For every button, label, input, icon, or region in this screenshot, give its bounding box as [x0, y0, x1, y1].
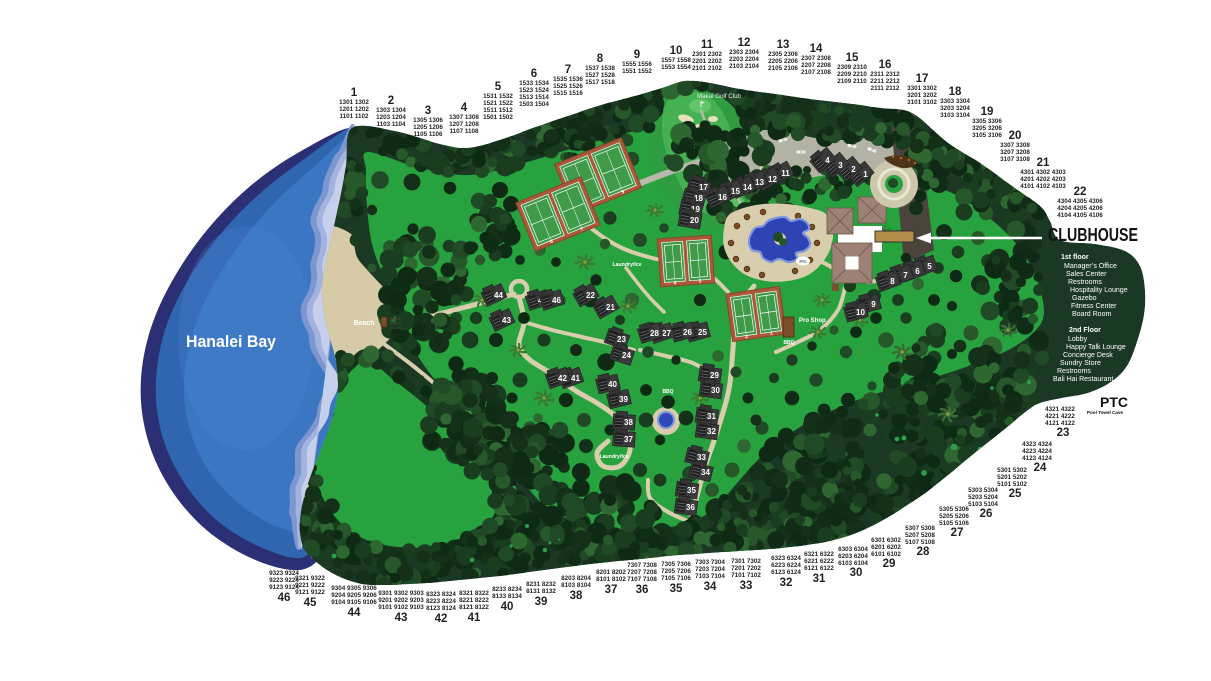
svg-text:14: 14: [743, 183, 752, 192]
svg-text:6301 6302: 6301 6302: [871, 537, 901, 544]
svg-text:29: 29: [710, 371, 719, 380]
svg-text:21: 21: [1037, 157, 1050, 169]
svg-text:6121 6122: 6121 6122: [804, 565, 834, 572]
svg-text:CLUBHOUSE: CLUBHOUSE: [1048, 225, 1138, 245]
svg-text:6321 6322: 6321 6322: [804, 551, 834, 558]
svg-text:19: 19: [981, 106, 994, 118]
svg-text:9323 9324: 9323 9324: [269, 570, 299, 577]
svg-text:1105 1106: 1105 1106: [413, 131, 443, 138]
svg-text:3101 3102: 3101 3102: [907, 99, 937, 106]
svg-text:3: 3: [838, 161, 843, 170]
svg-text:9204 9205 9206: 9204 9205 9206: [331, 592, 377, 599]
svg-text:1503 1504: 1503 1504: [519, 101, 549, 108]
svg-text:BBQ: BBQ: [783, 340, 794, 346]
svg-text:PTC: PTC: [1100, 394, 1128, 410]
svg-text:1307 1308: 1307 1308: [449, 114, 479, 121]
svg-text:3207 3208: 3207 3208: [1000, 149, 1030, 156]
svg-text:30: 30: [711, 386, 720, 395]
svg-text:27: 27: [951, 527, 964, 539]
svg-text:2: 2: [851, 165, 856, 174]
svg-text:8: 8: [890, 277, 895, 286]
svg-text:7: 7: [903, 271, 908, 280]
svg-text:4: 4: [461, 102, 468, 114]
svg-text:1521 1522: 1521 1522: [483, 100, 513, 107]
svg-text:8203 8204: 8203 8204: [561, 575, 591, 582]
svg-text:Concierge Desk: Concierge Desk: [1063, 352, 1113, 359]
svg-text:25: 25: [1009, 488, 1022, 500]
svg-text:43: 43: [395, 612, 408, 624]
svg-text:37: 37: [624, 435, 633, 444]
svg-text:9221 9222: 9221 9222: [295, 582, 325, 589]
svg-text:9123 9124: 9123 9124: [269, 584, 299, 591]
svg-text:4321 4322: 4321 4322: [1045, 406, 1075, 413]
svg-text:6201 6202: 6201 6202: [871, 544, 901, 551]
svg-text:12: 12: [738, 37, 751, 49]
svg-text:46: 46: [278, 592, 291, 604]
svg-text:6303 6304: 6303 6304: [838, 546, 868, 553]
svg-text:5: 5: [927, 262, 932, 271]
svg-text:Laundry/Ice: Laundry/Ice: [612, 262, 641, 268]
svg-text:24: 24: [1034, 462, 1047, 474]
svg-text:2305 2306: 2305 2306: [768, 51, 798, 58]
svg-text:Makai Golf Club: Makai Golf Club: [697, 93, 742, 100]
svg-text:34: 34: [701, 468, 710, 477]
svg-text:4221 4222: 4221 4222: [1045, 413, 1075, 420]
svg-text:Happy Talk Lounge: Happy Talk Lounge: [1066, 344, 1126, 351]
svg-text:22: 22: [586, 291, 595, 300]
svg-text:35: 35: [687, 486, 696, 495]
svg-text:1207 1208: 1207 1208: [449, 121, 479, 128]
svg-text:18: 18: [949, 86, 962, 98]
svg-text:1305 1306: 1305 1306: [413, 117, 443, 124]
svg-text:8: 8: [597, 53, 604, 65]
svg-text:1523 1524: 1523 1524: [519, 87, 549, 94]
svg-text:1517 1518: 1517 1518: [585, 79, 615, 86]
svg-text:1205 1206: 1205 1206: [413, 124, 443, 131]
svg-text:6: 6: [915, 267, 920, 276]
svg-text:Shack: Shack: [390, 325, 401, 330]
svg-text:8133 8134: 8133 8134: [492, 593, 522, 600]
svg-text:1513 1514: 1513 1514: [519, 94, 549, 101]
svg-text:7301 7302: 7301 7302: [731, 558, 761, 565]
svg-text:5201 5202: 5201 5202: [997, 474, 1027, 481]
svg-text:7205 7206: 7205 7206: [661, 568, 691, 575]
svg-text:46: 46: [552, 296, 561, 305]
svg-text:11: 11: [701, 39, 714, 51]
svg-text:43: 43: [502, 316, 511, 325]
svg-text:16: 16: [879, 59, 892, 71]
svg-text:BBQ: BBQ: [662, 389, 673, 395]
svg-text:3301 3302: 3301 3302: [907, 85, 937, 92]
svg-text:8321 8322: 8321 8322: [459, 590, 489, 597]
svg-text:1535 1536: 1535 1536: [553, 76, 583, 83]
svg-text:9321 9322: 9321 9322: [295, 575, 325, 582]
svg-text:3201 3202: 3201 3202: [907, 92, 937, 99]
svg-text:31: 31: [707, 412, 716, 421]
svg-text:9104 9105 9106: 9104 9105 9106: [331, 599, 377, 606]
svg-text:7103 7104: 7103 7104: [695, 573, 725, 580]
svg-text:Restrooms: Restrooms: [1068, 279, 1102, 286]
svg-text:4301 4302 4303: 4301 4302 4303: [1020, 169, 1066, 176]
svg-text:3: 3: [425, 105, 431, 117]
svg-text:1511 1512: 1511 1512: [483, 107, 513, 114]
svg-text:2311 2312: 2311 2312: [870, 71, 900, 78]
svg-text:4123 4124: 4123 4124: [1022, 455, 1052, 462]
svg-text:Hospitality Lounge: Hospitality Lounge: [1070, 287, 1128, 294]
svg-text:8101 8102: 8101 8102: [596, 576, 626, 583]
svg-text:1501 1502: 1501 1502: [483, 114, 513, 121]
svg-text:2205 2206: 2205 2206: [768, 58, 798, 65]
svg-text:8323 8324: 8323 8324: [426, 591, 456, 598]
svg-text:10: 10: [856, 308, 865, 317]
svg-text:38: 38: [624, 418, 633, 427]
svg-text:Restrooms: Restrooms: [1057, 368, 1091, 375]
svg-text:3105 3106: 3105 3106: [972, 132, 1002, 139]
svg-text:2105 2106: 2105 2106: [768, 65, 798, 72]
svg-text:36: 36: [686, 503, 695, 512]
svg-text:7307 7308: 7307 7308: [627, 562, 657, 569]
svg-text:5207 5208: 5207 5208: [905, 532, 935, 539]
svg-text:7107 7108: 7107 7108: [627, 576, 657, 583]
svg-text:17: 17: [916, 73, 929, 85]
svg-text:5203 5204: 5203 5204: [968, 494, 998, 501]
svg-text:34: 34: [704, 581, 717, 593]
svg-text:Hanalei Bay: Hanalei Bay: [186, 332, 276, 351]
svg-text:8201 8202: 8201 8202: [596, 569, 626, 576]
svg-text:26: 26: [980, 508, 993, 520]
svg-text:39: 39: [535, 596, 548, 608]
svg-text:1: 1: [351, 87, 358, 99]
svg-text:6103 6104: 6103 6104: [838, 560, 868, 567]
svg-text:6: 6: [531, 68, 537, 80]
svg-text:25: 25: [698, 328, 707, 337]
svg-text:5107 5108: 5107 5108: [905, 539, 935, 546]
svg-text:32: 32: [707, 427, 716, 436]
svg-text:4204 4205 4206: 4204 4205 4206: [1057, 205, 1103, 212]
svg-text:4323 4324: 4323 4324: [1022, 441, 1052, 448]
svg-text:5105 5106: 5105 5106: [939, 520, 969, 527]
svg-text:Sundry Store: Sundry Store: [1060, 360, 1101, 367]
svg-text:42: 42: [435, 613, 448, 625]
svg-text:9304 9305 9306: 9304 9305 9306: [331, 585, 377, 592]
svg-text:3107 3108: 3107 3108: [1000, 156, 1030, 163]
svg-text:4201 4202 4203: 4201 4202 4203: [1020, 176, 1066, 183]
svg-text:39: 39: [619, 395, 628, 404]
svg-text:Fitness Center: Fitness Center: [1071, 303, 1117, 310]
svg-text:6123 6124: 6123 6124: [771, 569, 801, 576]
svg-text:Bali Hai Restaurant: Bali Hai Restaurant: [1053, 376, 1113, 383]
svg-text:2211 2212: 2211 2212: [870, 78, 900, 85]
svg-text:5307 5308: 5307 5308: [905, 525, 935, 532]
svg-text:1555 1556: 1555 1556: [622, 61, 652, 68]
svg-text:8231 8232: 8231 8232: [526, 581, 556, 588]
svg-text:2nd Floor: 2nd Floor: [1069, 327, 1101, 334]
svg-text:28: 28: [917, 546, 930, 558]
svg-text:38: 38: [570, 590, 583, 602]
svg-text:41: 41: [468, 612, 481, 624]
svg-text:1551 1552: 1551 1552: [622, 68, 652, 75]
svg-text:6221 6222: 6221 6222: [804, 558, 834, 565]
svg-text:2207 2208: 2207 2208: [801, 62, 831, 69]
svg-text:45: 45: [304, 597, 317, 609]
svg-text:1201 1202: 1201 1202: [339, 106, 369, 113]
svg-text:Sales Center: Sales Center: [1066, 271, 1107, 278]
svg-text:14: 14: [810, 43, 823, 55]
svg-text:32: 32: [780, 577, 793, 589]
svg-text:2103 2104: 2103 2104: [729, 63, 759, 70]
svg-text:8233 8234: 8233 8234: [492, 586, 522, 593]
svg-text:8121 8122: 8121 8122: [459, 604, 489, 611]
svg-text:13: 13: [755, 178, 764, 187]
svg-text:2: 2: [388, 95, 394, 107]
svg-text:5205 5206: 5205 5206: [939, 513, 969, 520]
svg-text:8223 8224: 8223 8224: [426, 598, 456, 605]
svg-text:5101 5102: 5101 5102: [997, 481, 1027, 488]
svg-text:15: 15: [846, 52, 859, 64]
svg-text:3203 3204: 3203 3204: [940, 105, 970, 112]
svg-text:1107 1108: 1107 1108: [449, 128, 479, 135]
svg-text:31: 31: [813, 573, 826, 585]
svg-text:2201 2202: 2201 2202: [692, 58, 722, 65]
svg-text:1553 1554: 1553 1554: [661, 64, 691, 71]
svg-text:41: 41: [571, 374, 580, 383]
svg-text:13: 13: [777, 39, 790, 51]
svg-text:6223 6224: 6223 6224: [771, 562, 801, 569]
svg-text:2109 2110: 2109 2110: [837, 78, 867, 85]
svg-text:40: 40: [501, 601, 514, 613]
svg-text:3103 3104: 3103 3104: [940, 112, 970, 119]
svg-text:1515 1516: 1515 1516: [553, 90, 583, 97]
svg-text:Lobby: Lobby: [1068, 336, 1088, 343]
svg-text:20: 20: [690, 216, 699, 225]
svg-text:5305 5306: 5305 5306: [939, 506, 969, 513]
svg-text:7105 7106: 7105 7106: [661, 575, 691, 582]
svg-text:11: 11: [781, 169, 790, 178]
svg-text:5301 5302: 5301 5302: [997, 467, 1027, 474]
svg-text:7207 7208: 7207 7208: [627, 569, 657, 576]
svg-text:44: 44: [348, 607, 361, 619]
svg-text:26: 26: [683, 328, 692, 337]
svg-text:1537 1538: 1537 1538: [585, 65, 615, 72]
svg-text:6203 6204: 6203 6204: [838, 553, 868, 560]
svg-text:9101 9102 9103: 9101 9102 9103: [378, 604, 424, 611]
svg-text:9301 9302 9303: 9301 9302 9303: [378, 590, 424, 597]
svg-text:2203 2204: 2203 2204: [729, 56, 759, 63]
svg-text:20: 20: [1009, 130, 1022, 142]
svg-text:1531 1532: 1531 1532: [483, 93, 513, 100]
svg-text:40: 40: [608, 380, 617, 389]
svg-text:7201 7202: 7201 7202: [731, 565, 761, 572]
svg-text:5: 5: [495, 81, 502, 93]
svg-text:1557 1558: 1557 1558: [661, 57, 691, 64]
svg-text:2101 2102: 2101 2102: [692, 65, 722, 72]
svg-text:Beach: Beach: [353, 320, 374, 327]
svg-text:2107 2108: 2107 2108: [801, 69, 831, 76]
svg-text:17: 17: [699, 183, 708, 192]
svg-text:16: 16: [718, 193, 727, 202]
svg-text:15: 15: [731, 187, 740, 196]
svg-text:Pro Shop: Pro Shop: [799, 318, 826, 324]
svg-text:5103 5104: 5103 5104: [968, 501, 998, 508]
svg-text:44: 44: [494, 291, 503, 300]
svg-text:3205 3206: 3205 3206: [972, 125, 1002, 132]
svg-text:1101 1102: 1101 1102: [339, 113, 369, 120]
svg-text:2307 2308: 2307 2308: [801, 55, 831, 62]
svg-text:1527 1528: 1527 1528: [585, 72, 615, 79]
svg-text:4: 4: [825, 156, 830, 165]
svg-text:PTC: PTC: [800, 260, 807, 264]
svg-text:4101 4102 4103: 4101 4102 4103: [1020, 183, 1066, 190]
svg-text:1301 1302: 1301 1302: [339, 99, 369, 106]
svg-text:7303 7304: 7303 7304: [695, 559, 725, 566]
svg-text:30: 30: [850, 567, 863, 579]
svg-text:2301 2302: 2301 2302: [692, 51, 722, 58]
svg-text:33: 33: [740, 580, 753, 592]
svg-text:1st floor: 1st floor: [1061, 254, 1089, 261]
svg-text:7305 7306: 7305 7306: [661, 561, 691, 568]
svg-text:1203 1204: 1203 1204: [376, 114, 406, 121]
svg-text:12: 12: [768, 175, 777, 184]
svg-text:8123 8124: 8123 8124: [426, 605, 456, 612]
svg-text:35: 35: [670, 583, 683, 595]
svg-text:6101 6102: 6101 6102: [871, 551, 901, 558]
svg-text:4121 4122: 4121 4122: [1045, 420, 1075, 427]
svg-text:9: 9: [871, 300, 876, 309]
svg-text:Gazebo: Gazebo: [1072, 295, 1097, 302]
svg-text:27: 27: [662, 329, 671, 338]
svg-text:3305 3306: 3305 3306: [972, 118, 1002, 125]
svg-text:1525 1526: 1525 1526: [553, 83, 583, 90]
svg-text:1103 1104: 1103 1104: [376, 121, 406, 128]
svg-text:4304 4305 4306: 4304 4305 4306: [1057, 198, 1103, 205]
svg-text:29: 29: [883, 558, 896, 570]
svg-text:36: 36: [636, 584, 649, 596]
svg-text:2111 2112: 2111 2112: [871, 85, 900, 92]
svg-text:2309 2310: 2309 2310: [837, 64, 867, 71]
svg-text:7203 7204: 7203 7204: [695, 566, 725, 573]
svg-text:9121 9122: 9121 9122: [295, 589, 325, 596]
svg-text:8131 8132: 8131 8132: [526, 588, 556, 595]
svg-text:8221 8222: 8221 8222: [459, 597, 489, 604]
svg-text:8103 8104: 8103 8104: [561, 582, 591, 589]
svg-text:1533 1534: 1533 1534: [519, 80, 549, 87]
svg-text:2209 2210: 2209 2210: [837, 71, 867, 78]
svg-text:28: 28: [650, 329, 659, 338]
svg-text:2303 2304: 2303 2304: [729, 49, 759, 56]
svg-text:9: 9: [634, 49, 640, 61]
svg-text:4223 4224: 4223 4224: [1022, 448, 1052, 455]
svg-text:10: 10: [670, 45, 683, 57]
svg-text:9223 9224: 9223 9224: [269, 577, 299, 584]
svg-text:37: 37: [605, 584, 618, 596]
svg-text:9201 9202 9203: 9201 9202 9203: [378, 597, 424, 604]
svg-text:Pool Towel Cave: Pool Towel Cave: [1087, 410, 1124, 415]
svg-text:23: 23: [1057, 427, 1070, 439]
svg-text:Laundry/Ice: Laundry/Ice: [599, 454, 628, 460]
svg-text:22: 22: [1074, 186, 1087, 198]
svg-text:6323 6324: 6323 6324: [771, 555, 801, 562]
svg-text:4104 4105 4106: 4104 4105 4106: [1057, 212, 1103, 219]
svg-text:7: 7: [565, 64, 571, 76]
svg-text:Board Room: Board Room: [1072, 311, 1111, 318]
svg-text:42: 42: [558, 374, 567, 383]
svg-text:3303 3304: 3303 3304: [940, 98, 970, 105]
svg-text:Manager’s Office: Manager’s Office: [1064, 263, 1117, 270]
svg-text:1: 1: [863, 170, 868, 179]
svg-text:21: 21: [606, 303, 615, 312]
svg-text:24: 24: [622, 351, 631, 360]
svg-text:3307 3308: 3307 3308: [1000, 142, 1030, 149]
svg-text:5303 5304: 5303 5304: [968, 487, 998, 494]
svg-text:7101 7102: 7101 7102: [731, 572, 761, 579]
svg-text:1303 1304: 1303 1304: [376, 107, 406, 114]
